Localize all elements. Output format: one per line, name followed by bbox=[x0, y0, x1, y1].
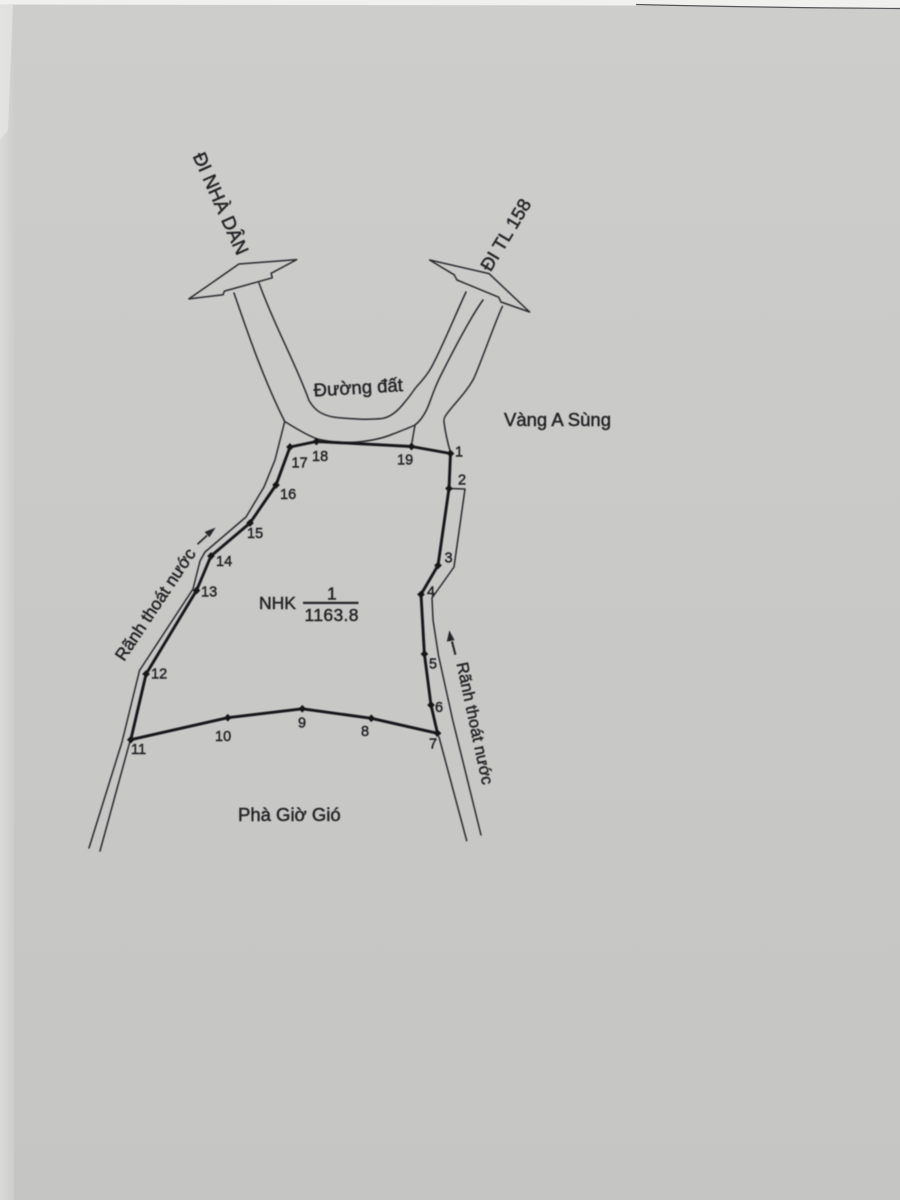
svg-text:4: 4 bbox=[427, 585, 435, 601]
svg-text:8: 8 bbox=[361, 724, 369, 740]
svg-text:3: 3 bbox=[445, 551, 453, 567]
svg-text:17: 17 bbox=[292, 456, 308, 472]
svg-text:Vàng A Sùng: Vàng A Sùng bbox=[504, 409, 611, 430]
svg-text:1: 1 bbox=[455, 445, 463, 461]
svg-text:11: 11 bbox=[131, 742, 146, 758]
svg-text:NHK: NHK bbox=[259, 593, 296, 613]
svg-text:5: 5 bbox=[429, 657, 437, 673]
svg-text:2: 2 bbox=[458, 473, 466, 489]
svg-text:14: 14 bbox=[216, 554, 232, 570]
svg-text:6: 6 bbox=[435, 700, 443, 716]
svg-text:15: 15 bbox=[247, 526, 263, 542]
svg-text:1: 1 bbox=[327, 584, 337, 604]
svg-text:16: 16 bbox=[280, 487, 296, 503]
svg-text:9: 9 bbox=[298, 716, 306, 732]
svg-text:13: 13 bbox=[201, 585, 217, 601]
svg-text:18: 18 bbox=[312, 449, 328, 465]
svg-text:Phà Giờ Gió: Phà Giờ Gió bbox=[238, 804, 341, 825]
svg-text:10: 10 bbox=[215, 729, 231, 745]
svg-text:1163.8: 1163.8 bbox=[305, 605, 359, 625]
svg-text:7: 7 bbox=[429, 737, 437, 753]
svg-text:19: 19 bbox=[397, 453, 413, 469]
svg-text:12: 12 bbox=[151, 667, 167, 683]
